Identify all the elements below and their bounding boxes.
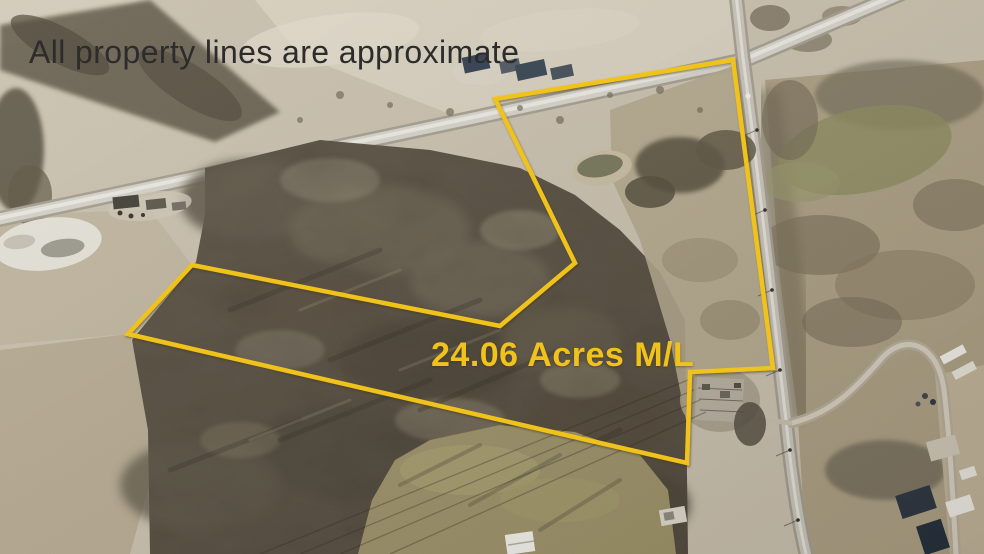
color-grade	[0, 0, 984, 554]
listing-photo: All property lines are approximate 24.06…	[0, 0, 984, 554]
aerial-photo	[0, 0, 984, 554]
